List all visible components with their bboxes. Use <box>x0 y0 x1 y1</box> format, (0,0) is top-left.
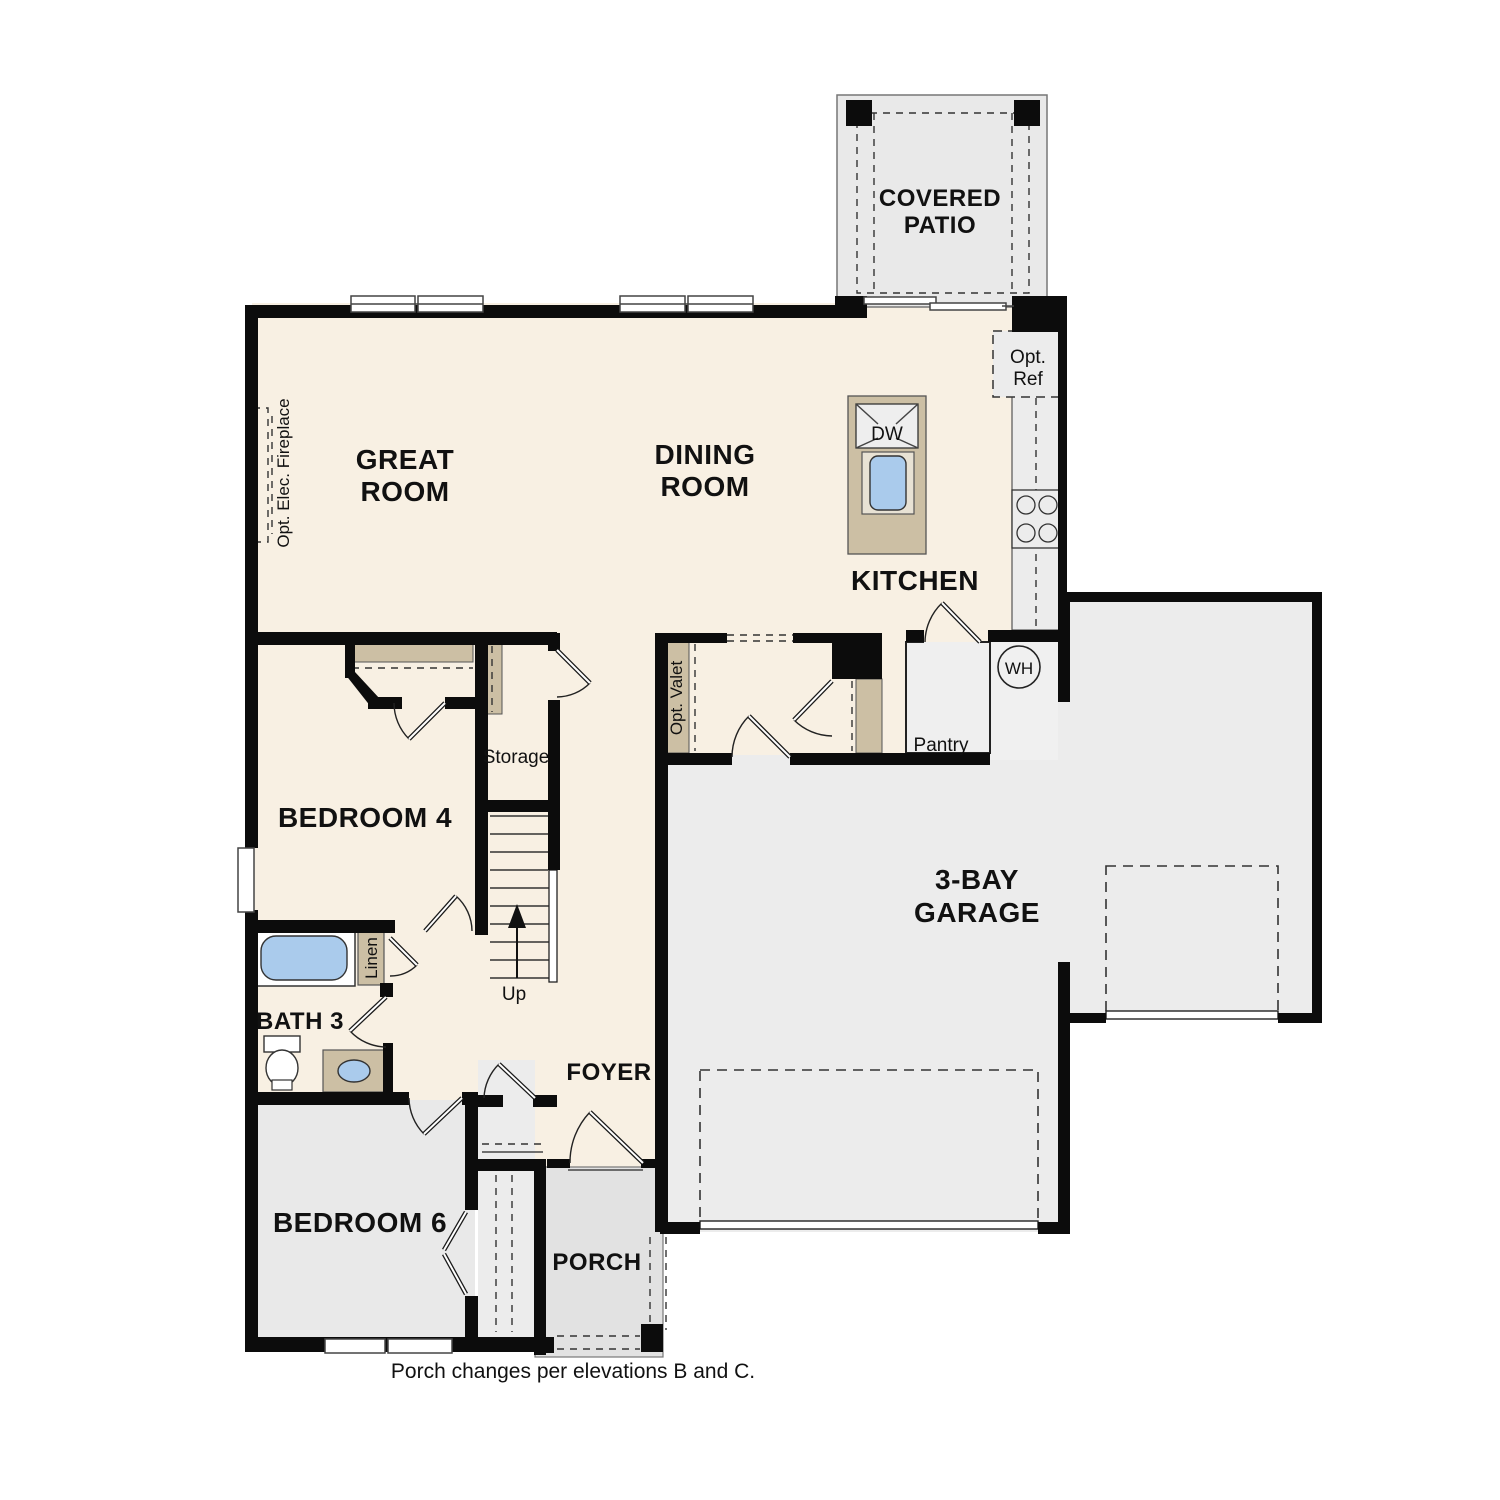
patio-slider-panel-1 <box>864 297 936 304</box>
wall-stair-left <box>475 632 488 935</box>
wall-closet4-c <box>445 697 477 709</box>
wall-bath-top <box>245 920 395 933</box>
vanity-sink-icon <box>338 1060 370 1082</box>
patio-post-left <box>846 100 872 126</box>
label-water-heater: WH <box>1005 659 1033 678</box>
label-foyer: FOYER <box>566 1059 651 1086</box>
stair-railing <box>549 870 557 982</box>
wall-mudroom-top-a <box>660 633 727 643</box>
label-opt-ref-1: Opt. <box>1010 347 1046 368</box>
wall-pantry-top-stub <box>906 630 924 642</box>
window-bedroom6-1 <box>325 1339 385 1353</box>
wall-top <box>245 305 867 318</box>
wall-left-upper <box>245 305 258 848</box>
wall-patio-stub <box>835 296 867 309</box>
bedroom4-closet-shelf <box>352 644 473 662</box>
porch-corner-block-right <box>641 1324 663 1352</box>
wall-garage-right-lower <box>1058 962 1070 1232</box>
wall-linen-stub <box>380 983 393 997</box>
wall-garage-bay-right <box>1312 592 1322 1023</box>
label-porch: PORCH <box>552 1249 641 1276</box>
mudroom-cased-opening <box>727 633 793 643</box>
wall-garage-bottom-a <box>660 1222 700 1234</box>
wall-left-lower <box>245 910 258 1350</box>
garage-bay-area <box>1058 598 1320 1017</box>
wall-garage-left-stub <box>1058 592 1070 702</box>
floor-plan-page: COVERED PATIO GREAT ROOM DINING ROOM KIT… <box>0 0 1500 1500</box>
floor-areas <box>252 95 1320 1357</box>
label-opt-fireplace: Opt. Elec. Fireplace <box>274 398 293 547</box>
wall-bedroom6-right-a <box>465 1092 478 1210</box>
toilet-base-icon <box>272 1080 292 1090</box>
wall-mudroom-column <box>832 633 882 679</box>
wall-mudroom-bottom-a <box>655 753 732 765</box>
wall-bedroom4-top <box>245 632 557 645</box>
wall-wh-nook-top <box>988 630 1067 642</box>
label-opt-ref-2: Ref <box>1013 369 1043 390</box>
label-bedroom4: BEDROOM 4 <box>278 802 452 833</box>
label-great-room-1: GREAT <box>356 444 454 475</box>
label-bedroom6: BEDROOM 6 <box>273 1207 447 1238</box>
wall-foyer-south-a <box>547 1159 570 1168</box>
label-garage-1: 3-BAY <box>935 864 1019 895</box>
wall-bath-bottom-a <box>245 1092 409 1105</box>
patio-post-right <box>1014 100 1040 126</box>
garage-door-double <box>700 1221 1038 1229</box>
wall-bath-right <box>383 1043 393 1092</box>
bathtub-icon <box>261 936 347 980</box>
mudroom-closet-shelf <box>856 679 882 753</box>
label-covered-patio-1: COVERED <box>879 185 1001 212</box>
window-bedroom4 <box>238 848 254 912</box>
garage-main-area <box>660 755 1070 1232</box>
wall-stair-top <box>475 800 560 812</box>
wall-ne-corner <box>1012 296 1067 332</box>
wall-closet4-b <box>368 697 402 709</box>
wall-garage-bay-top <box>1058 592 1322 602</box>
label-garage-2: GARAGE <box>914 897 1040 928</box>
wall-kitchen-right <box>1058 330 1067 632</box>
label-linen: Linen <box>362 937 381 979</box>
wall-garage-bottom-b <box>1038 1222 1070 1234</box>
wall-closet-divider <box>478 1159 536 1171</box>
label-great-room-2: ROOM <box>360 476 449 507</box>
label-dishwasher: DW <box>871 424 903 445</box>
plan-caption: Porch changes per elevations B and C. <box>391 1360 755 1383</box>
label-covered-patio-2: PATIO <box>904 212 976 239</box>
label-storage: Storage <box>483 747 550 768</box>
label-up: Up <box>502 984 526 1005</box>
floor-plan-drawing: COVERED PATIO GREAT ROOM DINING ROOM KIT… <box>0 0 1500 1500</box>
sink-icon <box>870 456 906 510</box>
label-dining-room-2: ROOM <box>660 471 749 502</box>
wall-storage-right-b <box>548 700 560 870</box>
wall-mudroom-top-b <box>793 633 832 643</box>
label-bath3: BATH 3 <box>256 1008 344 1035</box>
wall-coat-closet-b <box>533 1095 557 1107</box>
label-kitchen: KITCHEN <box>851 565 979 596</box>
garage-door-single <box>1106 1011 1278 1019</box>
window-bedroom6-2 <box>388 1339 452 1353</box>
wall-porch-left <box>534 1159 546 1355</box>
wall-garage-bay-bottom-b <box>1278 1013 1322 1023</box>
label-pantry: Pantry <box>914 735 969 756</box>
wall-storage-right-a <box>548 633 560 651</box>
patio-slider-panel-2 <box>930 303 1006 310</box>
label-dining-room-1: DINING <box>655 439 756 470</box>
label-opt-valet: Opt. Valet <box>667 661 686 736</box>
wall-coat-closet-a <box>478 1095 503 1107</box>
